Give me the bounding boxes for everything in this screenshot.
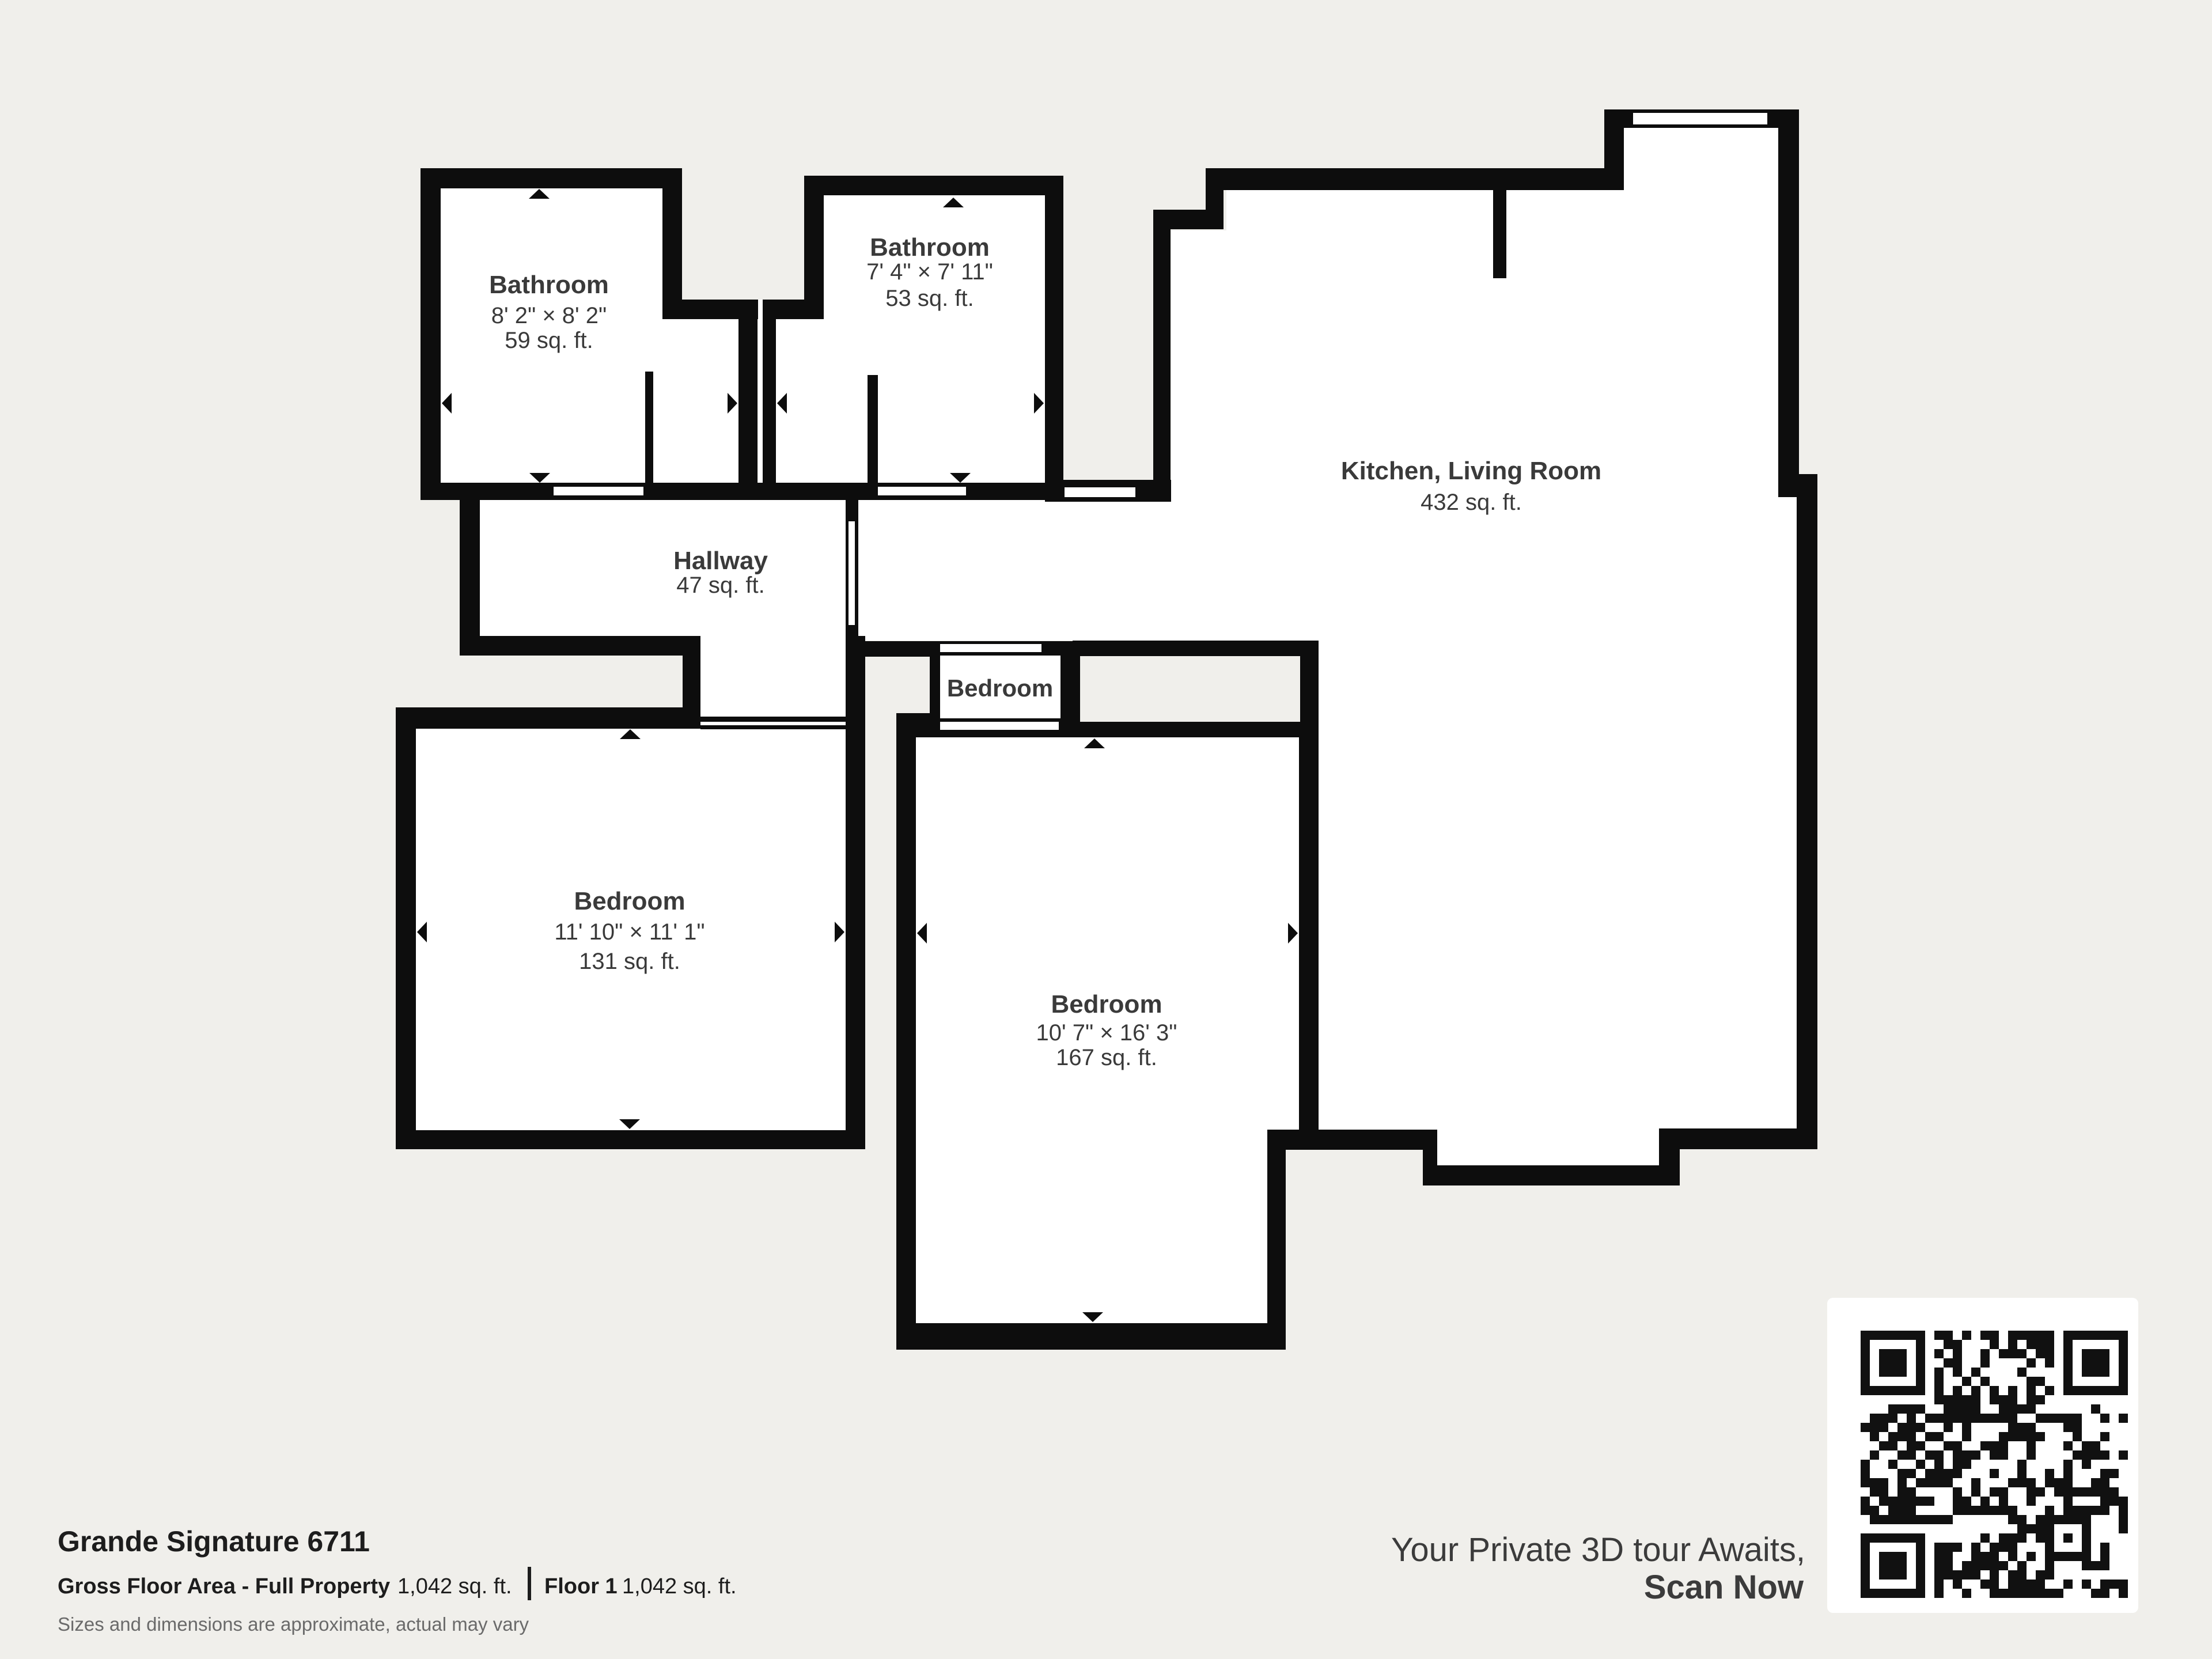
svg-text:Bedroom: Bedroom [947,675,1053,702]
svg-text:Grande Signature 6711: Grande Signature 6711 [58,1525,370,1558]
svg-text:Bedroom: Bedroom [1051,990,1162,1018]
svg-text:53 sq. ft.: 53 sq. ft. [885,286,974,311]
svg-text:59 sq. ft.: 59 sq. ft. [505,328,593,353]
svg-text:7' 4" × 7' 11": 7' 4" × 7' 11" [866,259,993,285]
svg-text:Kitchen, Living Room: Kitchen, Living Room [1341,457,1601,485]
svg-text:47 sq. ft.: 47 sq. ft. [676,573,764,598]
svg-text:8' 2" × 8' 2": 8' 2" × 8' 2" [491,303,607,328]
svg-text:10' 7" × 16' 3": 10' 7" × 16' 3" [1036,1020,1177,1046]
svg-text:432 sq. ft.: 432 sq. ft. [1421,490,1522,515]
svg-text:Gross Floor Area - Full Proper: Gross Floor Area - Full Property [58,1574,390,1599]
svg-text:Floor 1: Floor 1 [544,1574,618,1599]
svg-text:167 sq. ft.: 167 sq. ft. [1056,1045,1157,1070]
svg-text:Bathroom: Bathroom [870,233,990,262]
svg-text:1,042 sq. ft.: 1,042 sq. ft. [397,1574,512,1599]
svg-text:Scan Now: Scan Now [1644,1569,1804,1606]
svg-text:131 sq. ft.: 131 sq. ft. [579,949,680,974]
svg-text:Your Private 3D tour Awaits,: Your Private 3D tour Awaits, [1391,1531,1805,1569]
svg-text:Sizes and dimensions are appro: Sizes and dimensions are approximate, ac… [58,1613,529,1635]
svg-text:1,042 sq. ft.: 1,042 sq. ft. [622,1574,737,1599]
svg-text:Bathroom: Bathroom [489,271,609,299]
svg-text:Hallway: Hallway [673,547,768,575]
svg-text:Bedroom: Bedroom [574,887,685,915]
svg-text:11' 10" × 11' 1": 11' 10" × 11' 1" [554,919,704,945]
